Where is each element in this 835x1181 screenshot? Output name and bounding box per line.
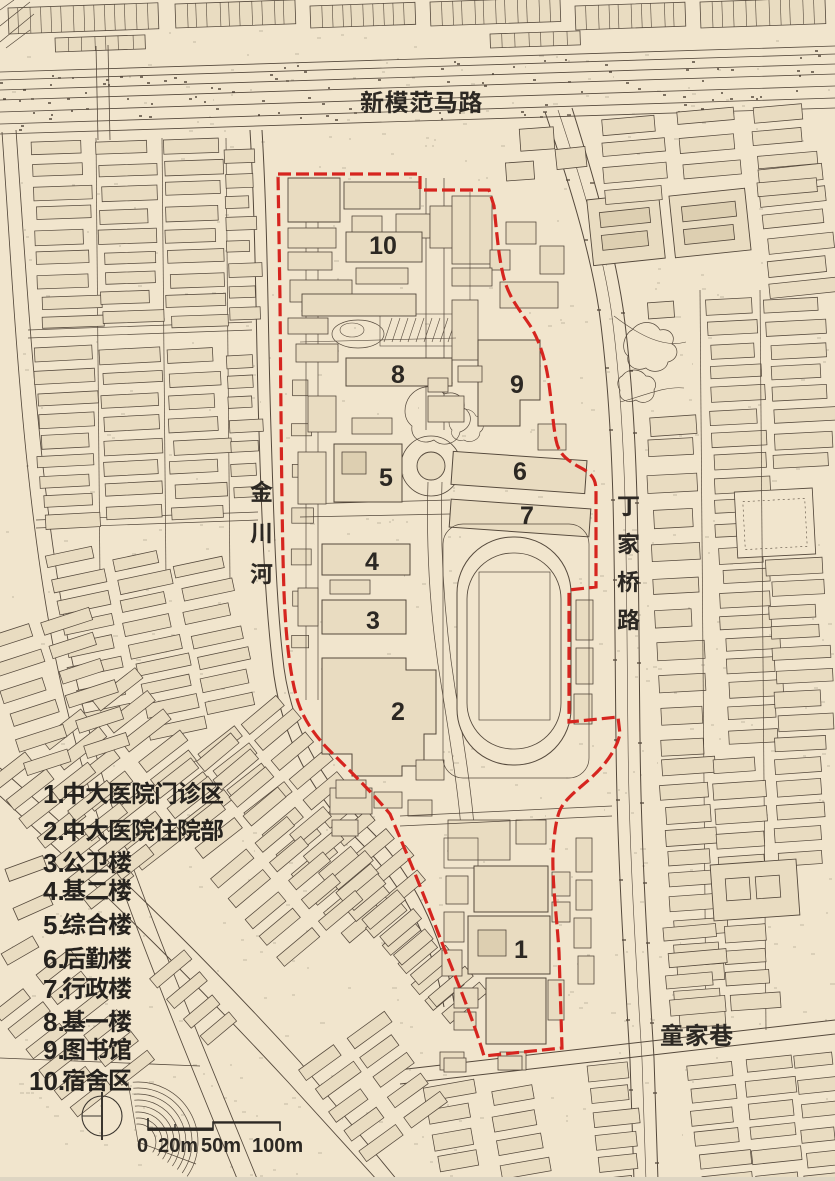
svg-text:6: 6 <box>513 458 527 486</box>
svg-text:6.: 6. <box>43 944 65 974</box>
svg-text:10: 10 <box>369 232 397 260</box>
svg-text:7: 7 <box>520 502 534 530</box>
svg-text:5: 5 <box>379 464 393 492</box>
svg-text:3.: 3. <box>43 848 65 878</box>
svg-text:3: 3 <box>366 607 380 635</box>
svg-text:100m: 100m <box>252 1135 303 1157</box>
svg-text:2: 2 <box>391 698 405 726</box>
svg-text:20m: 20m <box>158 1135 198 1157</box>
svg-text:1: 1 <box>514 936 528 964</box>
svg-text:9: 9 <box>510 371 524 399</box>
svg-text:0: 0 <box>137 1135 148 1157</box>
svg-text:7.: 7. <box>43 974 65 1004</box>
svg-text:5.: 5. <box>43 910 65 940</box>
svg-text:4: 4 <box>365 548 379 576</box>
svg-text:2.: 2. <box>43 816 65 846</box>
svg-text:4.: 4. <box>43 876 65 906</box>
svg-text:1.: 1. <box>43 779 65 809</box>
svg-text:10.: 10. <box>29 1066 65 1096</box>
svg-text:8.: 8. <box>43 1007 65 1037</box>
svg-text:9.: 9. <box>43 1035 65 1065</box>
svg-text:50m: 50m <box>201 1135 241 1157</box>
svg-text:8: 8 <box>391 361 405 389</box>
